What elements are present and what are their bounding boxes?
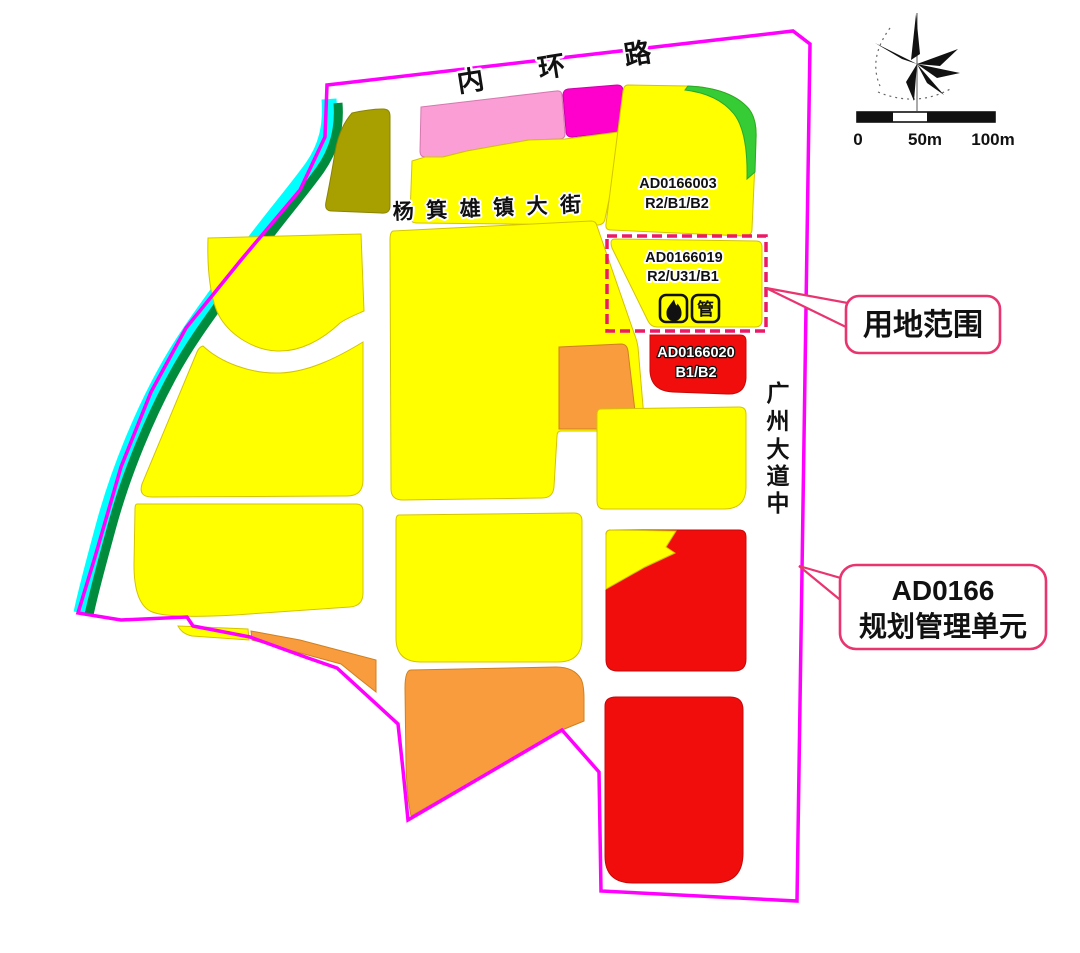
parcel-019-id: AD0166019 [645, 250, 722, 266]
parcel-003-use: R2/B1/B2 [645, 196, 709, 212]
avenue-char-1: 广 [767, 380, 790, 406]
avenue-char-4: 道 [767, 463, 790, 489]
callout-planning-unit: AD0166 规划管理单元 [799, 565, 1046, 649]
avenue-char-2: 州 [767, 408, 790, 434]
callout-planning-unit-line1: AD0166 [892, 575, 995, 606]
inner-ring-char-3: 路 [622, 36, 655, 71]
parcel-orange-bottom [405, 667, 584, 816]
parcel-magenta [563, 85, 624, 137]
zoning-map: 内 环 路 杨箕雄镇大街 广 州 大 道 中 AD0166003 R2/B1/B… [0, 0, 1080, 953]
parcel-red-bottom [605, 697, 743, 883]
scale-bar: 0 50m 100m [853, 112, 1014, 149]
north-compass-icon [875, 13, 960, 111]
avenue-label: 广 州 大 道 中 [767, 380, 790, 516]
scale-label-50: 50m [908, 130, 942, 149]
parcel-left-lower [134, 504, 363, 616]
scale-label-100: 100m [971, 130, 1014, 149]
parcel-003-id: AD0166003 [639, 176, 716, 192]
inner-ring-char-1: 内 [455, 64, 486, 98]
avenue-char-3: 大 [767, 436, 790, 462]
parcel-left-banana [208, 234, 364, 351]
callout-planning-unit-line2: 规划管理单元 [859, 610, 1027, 642]
avenue-char-5: 中 [767, 490, 790, 516]
scale-label-0: 0 [853, 130, 862, 149]
callout-land-scope: 用地范围 [766, 288, 1000, 353]
parcel-020-id: AD0166020 [657, 345, 734, 361]
parcel-020-use: B1/B2 [675, 365, 716, 381]
callout-land-scope-text: 用地范围 [863, 309, 983, 342]
callout-planning-unit-pointer [799, 566, 844, 603]
parcel-right-yellow [597, 407, 746, 509]
parcel-central-bottom [396, 513, 582, 662]
inner-ring-char-2: 环 [536, 50, 567, 84]
parcel-019-use: R2/U31/B1 [647, 269, 719, 285]
pipe-icon-char: 管 [697, 299, 714, 319]
zoning-map-page: 内 环 路 杨箕雄镇大街 广 州 大 道 中 AD0166003 R2/B1/B… [0, 0, 1080, 953]
